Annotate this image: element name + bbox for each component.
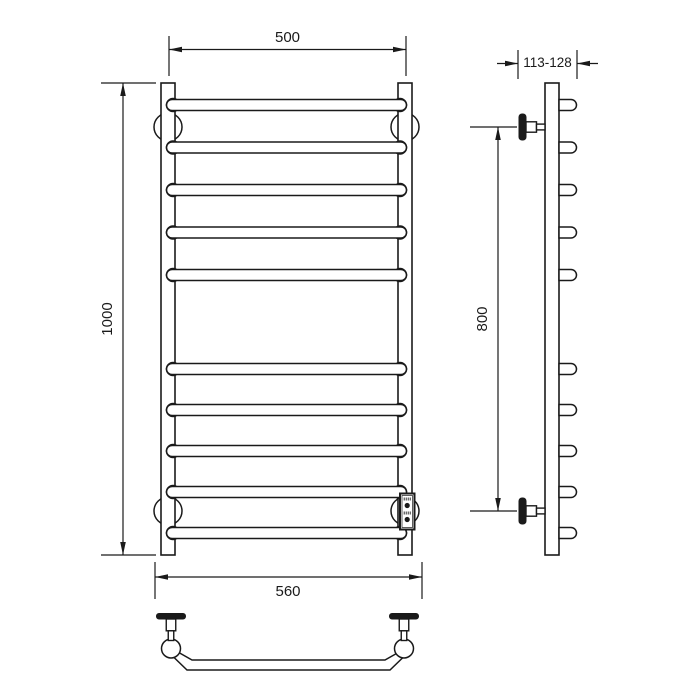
side-post xyxy=(545,83,559,555)
curved-rung-profile xyxy=(173,652,405,671)
front-mount-circles xyxy=(154,113,419,525)
rungs xyxy=(167,99,407,540)
top-view-left-post xyxy=(162,639,181,658)
side-view xyxy=(519,83,577,555)
side-wall-brackets xyxy=(519,114,545,524)
side-stubs xyxy=(559,100,577,539)
dimension-mount-spacing-label: 800 xyxy=(474,306,491,331)
dimension-bottom-width-label: 560 xyxy=(275,583,300,600)
top-view-right-post xyxy=(395,639,414,658)
top-view-wall-brackets xyxy=(157,614,419,641)
dimension-overall-height-label: 1000 xyxy=(99,302,116,335)
top-view xyxy=(157,614,419,671)
dimension-top-width-label: 500 xyxy=(275,29,300,46)
front-view xyxy=(154,83,419,555)
drawing-svg: 500 1000 560 113-128 800 xyxy=(0,0,700,700)
dimension-depth-label: 113-128 xyxy=(523,55,572,70)
technical-drawing: 500 1000 560 113-128 800 xyxy=(0,0,700,700)
control-box xyxy=(400,494,415,530)
